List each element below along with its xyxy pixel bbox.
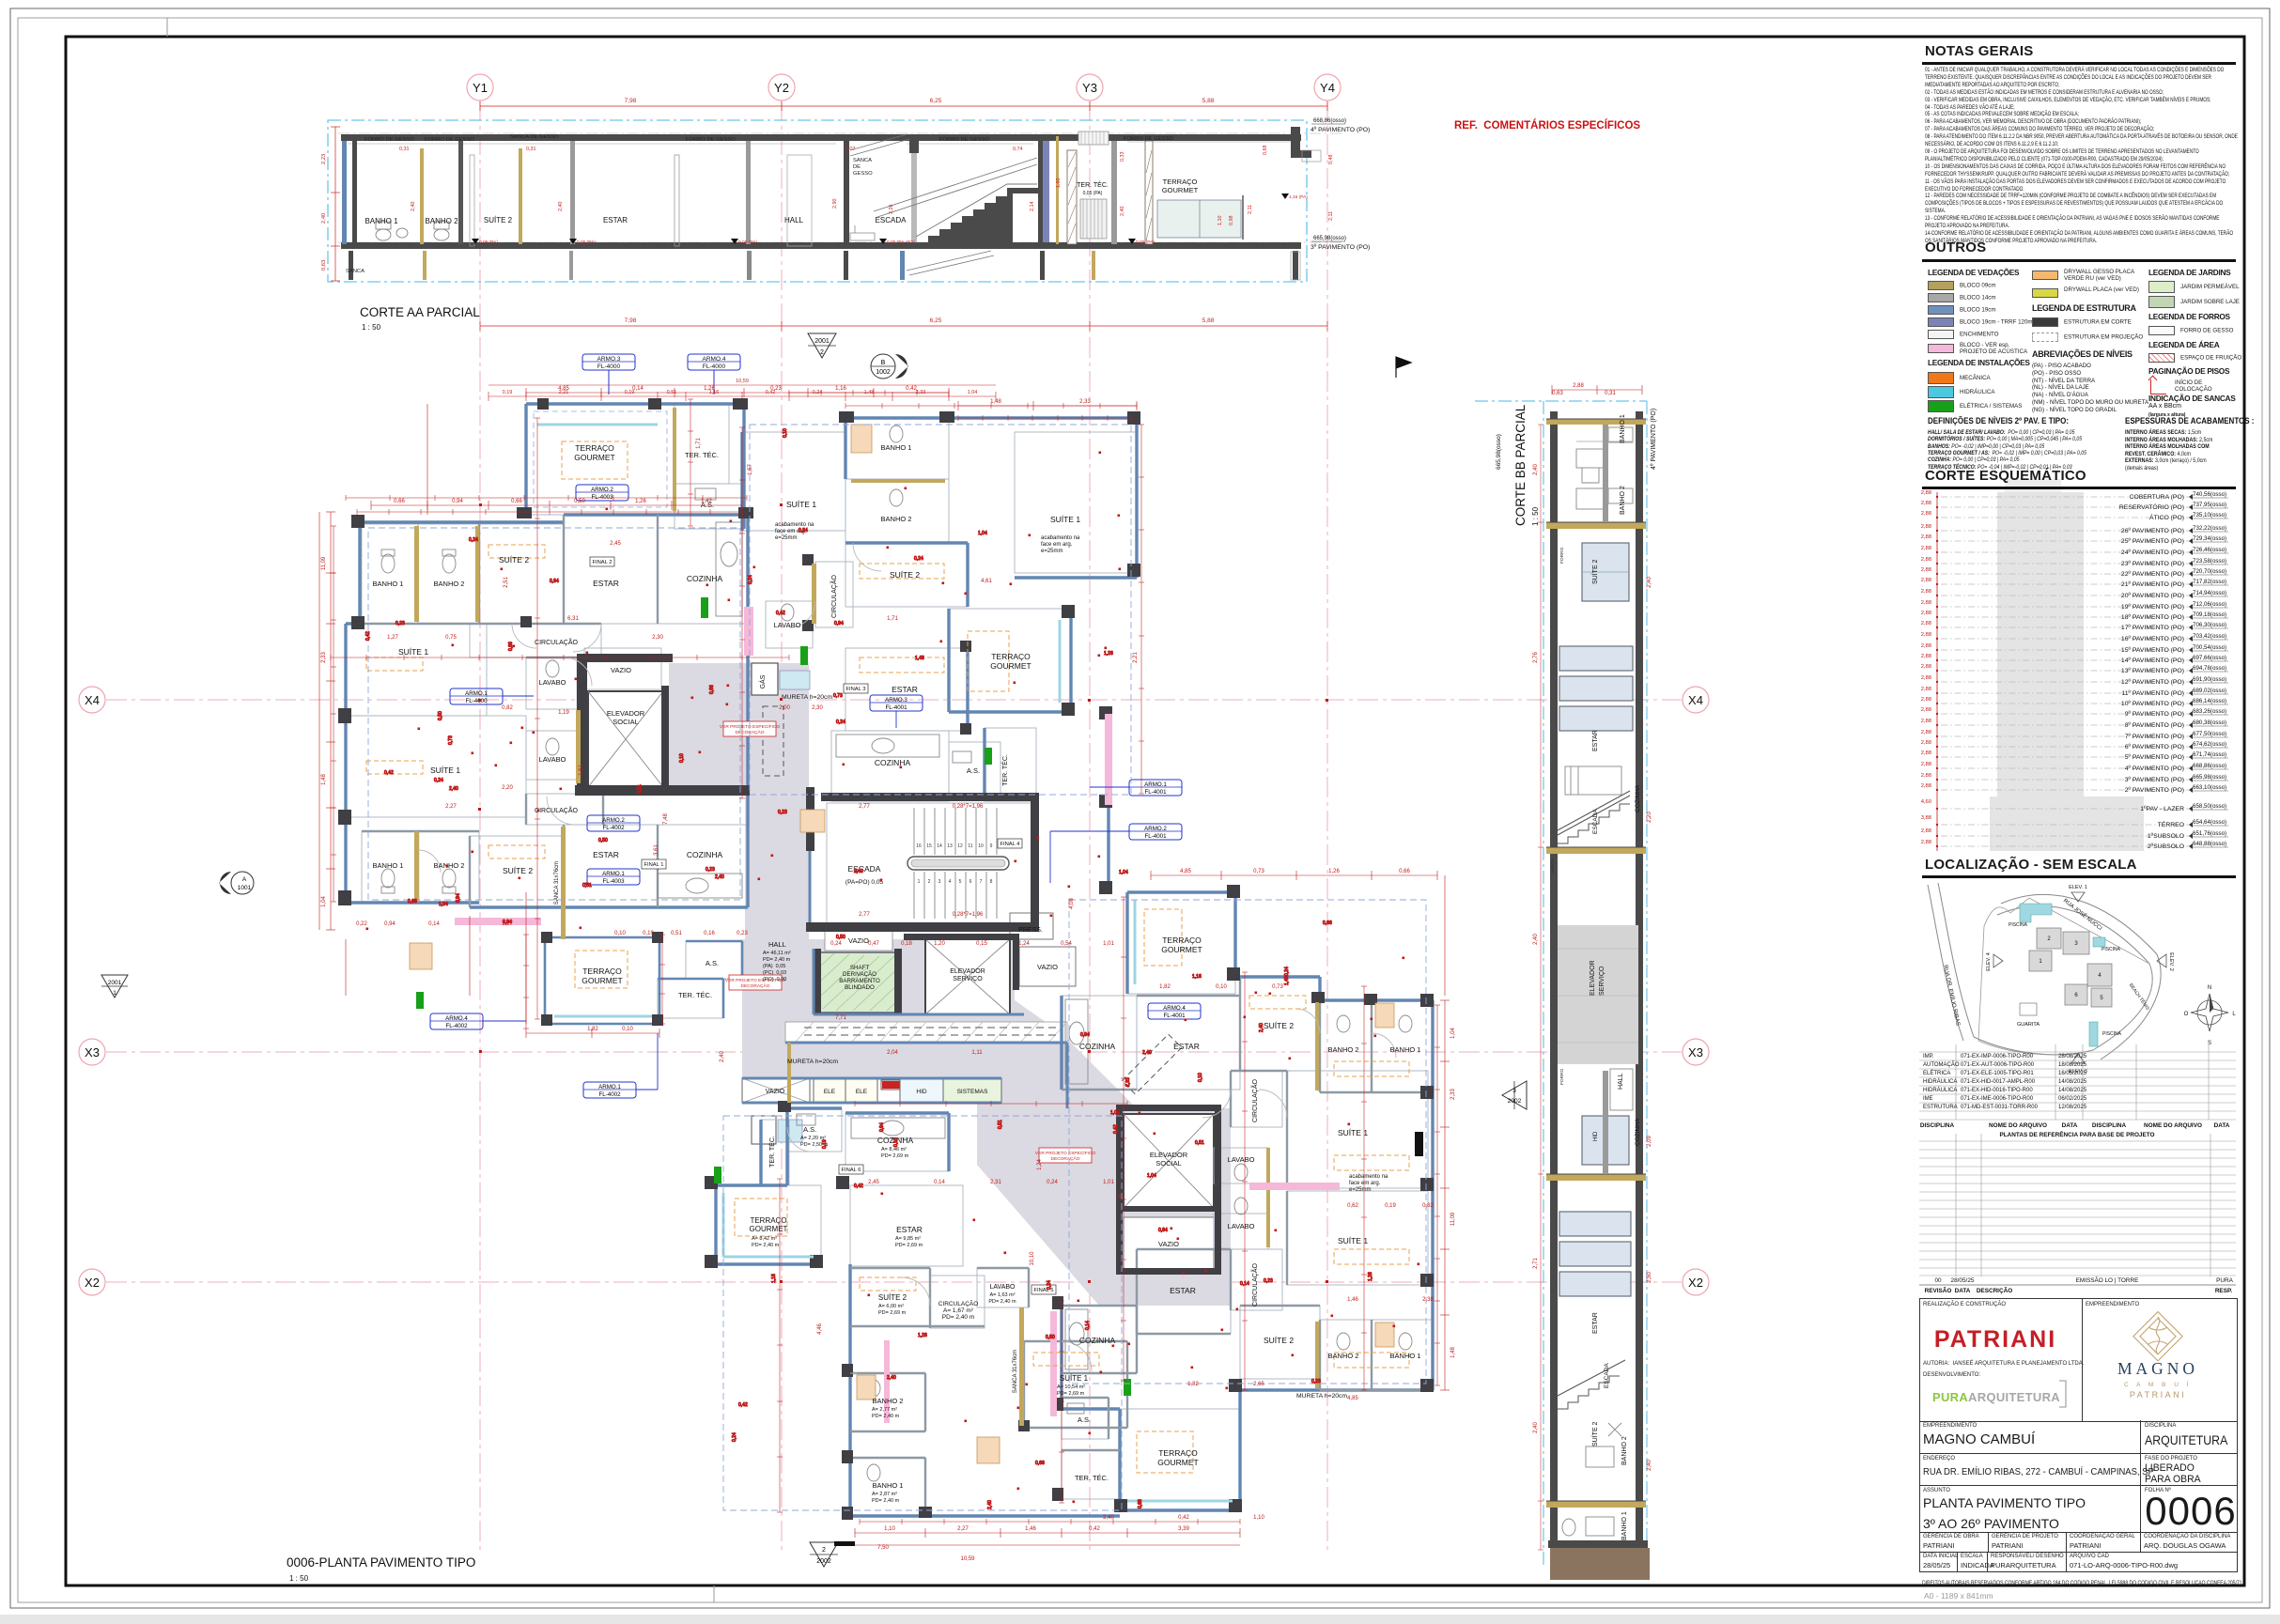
svg-text:DECORAÇÃO: DECORAÇÃO (741, 982, 770, 989)
svg-text:SUÍTE 1: SUÍTE 1 (430, 766, 460, 775)
svg-text:VAZIO: VAZIO (766, 1089, 785, 1095)
svg-text:ARMO.4: ARMO.4 (445, 1015, 468, 1022)
svg-text:SUÍTE 2: SUÍTE 2 (484, 216, 513, 224)
svg-text:DERIVAÇÃO: DERIVAÇÃO (843, 971, 876, 978)
svg-text:1: 1 (918, 879, 921, 885)
svg-text:2,88: 2,88 (1921, 750, 1931, 756)
svg-text:ARMO.1: ARMO.1 (1144, 781, 1167, 788)
svg-text:0,66: 0,66 (394, 499, 405, 504)
svg-text:SHAFT: SHAFT (850, 965, 870, 971)
svg-text:TERRAÇO: TERRAÇO (1163, 178, 1198, 186)
svg-text:BARRAMENTO: BARRAMENTO (839, 978, 880, 984)
svg-text:GOURMET: GOURMET (574, 453, 614, 462)
svg-text:714,94(osso): 714,94(osso) (2193, 590, 2226, 596)
svg-text:740,56(osso): 740,56(osso) (2193, 491, 2226, 498)
svg-text:1,26: 1,26 (1104, 651, 1113, 657)
svg-text:0,10: 0,10 (893, 1137, 899, 1147)
svg-text:FL-4000: FL-4000 (597, 363, 621, 370)
svg-text:2,40: 2,40 (1647, 1460, 1652, 1471)
svg-text:acabamento na: acabamento na (1349, 1174, 1388, 1180)
svg-text:PISCINA: PISCINA (2009, 922, 2028, 928)
svg-text:0,33: 0,33 (1120, 152, 1125, 162)
svg-text:0,22: 0,22 (356, 921, 367, 927)
svg-text:TERRAÇO: TERRAÇO (1158, 1448, 1198, 1458)
svg-text:8: 8 (990, 879, 993, 885)
svg-text:COZINHA: COZINHA (687, 850, 723, 859)
svg-text:ELÉTRICA: ELÉTRICA (1923, 1070, 1950, 1076)
svg-text:0,24: 0,24 (1047, 1280, 1052, 1290)
svg-text:VAZIO: VAZIO (1158, 1240, 1179, 1248)
svg-text:BANHO 1: BANHO 1 (873, 1481, 904, 1490)
svg-text:PRESS.: PRESS. (1018, 927, 1043, 934)
svg-text:2,88: 2,88 (1921, 719, 1931, 724)
svg-text:0,94: 0,94 (452, 499, 463, 504)
svg-text:FL-4002: FL-4002 (598, 1091, 621, 1098)
svg-text:2,33: 2,33 (1125, 1077, 1131, 1087)
svg-text:3,61: 3,61 (654, 844, 659, 856)
svg-text:2,88: 2,88 (1573, 383, 1584, 389)
svg-text:ESTAR: ESTAR (593, 850, 619, 859)
svg-text:26º PAVIMENTO (PO): 26º PAVIMENTO (PO) (2121, 528, 2184, 534)
svg-text:16º PAVIMENTO (PO): 16º PAVIMENTO (PO) (2121, 636, 2184, 642)
svg-text:0,24: 0,24 (1284, 967, 1290, 976)
svg-text:0,42: 0,42 (1178, 1515, 1189, 1521)
svg-text:0,66: 0,66 (408, 899, 417, 905)
svg-text:2,11: 2,11 (1248, 205, 1253, 214)
svg-text:2º PAVIMENTO (PO): 2º PAVIMENTO (PO) (2125, 787, 2184, 794)
svg-text:1,26: 1,26 (704, 386, 715, 392)
svg-text:HID: HID (916, 1089, 927, 1095)
svg-text:4,85: 4,85 (558, 386, 569, 392)
svg-text:0,14: 0,14 (934, 1180, 945, 1185)
svg-text:A= 2,77 m²: A= 2,77 m² (872, 1407, 897, 1413)
svg-text:ESCADA: ESCADA (1592, 809, 1599, 834)
svg-text:0,42: 0,42 (1113, 1124, 1119, 1134)
svg-text:HALL: HALL (784, 216, 804, 224)
svg-text:1,11: 1,11 (971, 1050, 983, 1056)
svg-text:BANHO 2: BANHO 2 (873, 1397, 904, 1405)
svg-text:SANCA: SANCA (346, 269, 364, 274)
svg-text:0,31: 0,31 (1605, 391, 1616, 396)
svg-text:5: 5 (959, 879, 962, 885)
svg-text:2: 2 (820, 349, 824, 356)
svg-text:TERRAÇO: TERRAÇO (575, 443, 614, 453)
svg-text:1,24: 1,24 (1018, 941, 1030, 947)
svg-text:COZINHA: COZINHA (687, 574, 723, 583)
svg-text:1 : 50: 1 : 50 (362, 323, 381, 332)
svg-text:2,51: 2,51 (504, 577, 509, 588)
svg-text:1,10: 1,10 (884, 1526, 895, 1532)
svg-text:CIRCULAÇÃO: CIRCULAÇÃO (1250, 1263, 1259, 1307)
svg-text:REVISÃO: REVISÃO (1925, 1286, 1952, 1294)
svg-text:0,19: 0,19 (643, 931, 654, 936)
svg-text:PD= 2,69 m: PD= 2,69 m (895, 1243, 923, 1248)
svg-text:(PA=PO) 0,05: (PA=PO) 0,05 (845, 879, 884, 886)
svg-text:726,46(osso): 726,46(osso) (2193, 547, 2226, 553)
svg-text:7,48: 7,48 (663, 813, 669, 825)
svg-text:DE: DE (853, 164, 861, 170)
svg-text:0,28*7=1,96: 0,28*7=1,96 (953, 804, 984, 810)
svg-text:10,59: 10,59 (736, 379, 749, 384)
svg-text:LAVABO: LAVABO (774, 621, 801, 629)
svg-text:ARMO.2: ARMO.2 (1144, 826, 1167, 832)
svg-text:MURETA h=20cm: MURETA h=20cm (782, 694, 832, 701)
svg-text:SUÍTE 2: SUÍTE 2 (499, 555, 529, 565)
svg-text:TER. TÉC.: TER. TÉC. (678, 991, 712, 999)
svg-text:0,28*7=1,96: 0,28*7=1,96 (953, 912, 984, 918)
svg-text:RESERVATÓRIO (PO): RESERVATÓRIO (PO) (2119, 503, 2184, 511)
svg-text:FORRO DE GESSO: FORRO DE GESSO (939, 137, 989, 143)
svg-text:2,40: 2,40 (1142, 1050, 1152, 1056)
svg-text:0,42: 0,42 (906, 386, 917, 392)
svg-text:1,48: 1,48 (1450, 1347, 1456, 1358)
svg-text:651,76(osso): 651,76(osso) (2193, 830, 2226, 837)
svg-text:0,23: 0,23 (396, 621, 405, 626)
svg-text:2001: 2001 (814, 338, 830, 345)
svg-text:2,88: 2,88 (1921, 621, 1931, 626)
svg-text:0,14: 0,14 (1240, 1281, 1249, 1287)
svg-text:0,05 (PA=PO): 0,05 (PA=PO) (887, 240, 915, 245)
svg-text:2,27: 2,27 (957, 1526, 969, 1532)
svg-text:4,08: 4,08 (1069, 898, 1075, 909)
svg-text:1,26: 1,26 (918, 1333, 927, 1338)
svg-text:1,24: 1,24 (1037, 1159, 1043, 1170)
svg-text:FL-4003: FL-4003 (591, 494, 613, 501)
svg-text:A= 9,85 m²: A= 9,85 m² (895, 1236, 921, 1242)
svg-text:071-EX-HID-0017-AMPL-R00: 071-EX-HID-0017-AMPL-R00 (1961, 1079, 2036, 1085)
svg-text:0,15: 0,15 (976, 941, 987, 947)
svg-text:MURETA h=20cm: MURETA h=20cm (787, 1059, 838, 1065)
svg-text:0,42: 0,42 (365, 631, 371, 641)
svg-text:PD= 2,69 m: PD= 2,69 m (878, 1310, 907, 1316)
svg-text:071-EX-IMP-0006-TIPO-R00: 071-EX-IMP-0006-TIPO-R00 (1961, 1054, 2034, 1059)
svg-text:2,40: 2,40 (558, 202, 564, 212)
svg-text:0,42: 0,42 (1089, 1526, 1100, 1532)
svg-text:VAZIO: VAZIO (611, 666, 631, 674)
svg-text:2,31: 2,31 (990, 1180, 1001, 1185)
svg-text:9: 9 (990, 843, 993, 849)
svg-text:1,16: 1,16 (1192, 974, 1202, 980)
svg-text:ARMO.1: ARMO.1 (602, 871, 625, 877)
svg-text:071-EX-HID-0016-TIPO-R00: 071-EX-HID-0016-TIPO-R00 (1961, 1088, 2033, 1093)
svg-text:e=25mm: e=25mm (1349, 1187, 1372, 1193)
svg-text:1,04: 1,04 (1119, 870, 1128, 875)
svg-text:ESTAR: ESTAR (1170, 1286, 1196, 1295)
svg-text:674,62(osso): 674,62(osso) (2193, 741, 2226, 748)
svg-text:11º PAVIMENTO (PO): 11º PAVIMENTO (PO) (2121, 690, 2184, 697)
svg-text:1002: 1002 (876, 369, 891, 376)
svg-text:X2: X2 (1688, 1276, 1703, 1290)
svg-text:GÁS: GÁS (758, 674, 767, 688)
svg-text:ELEVADOR: ELEVADOR (607, 709, 645, 718)
svg-text:BANHO 1: BANHO 1 (1620, 414, 1626, 443)
svg-text:0,23: 0,23 (706, 867, 715, 873)
svg-text:7,98: 7,98 (625, 98, 637, 104)
svg-text:1,46: 1,46 (1025, 1526, 1036, 1532)
svg-text:GESSO: GESSO (853, 171, 873, 177)
svg-text:A= 1,67 m²: A= 1,67 m² (943, 1307, 974, 1314)
svg-text:BANHO 1: BANHO 1 (881, 443, 912, 452)
svg-text:0,05 (PA): 0,05 (PA) (738, 240, 757, 245)
svg-text:10,10: 10,10 (1030, 1251, 1035, 1266)
svg-text:14/08/2025: 14/08/2025 (2058, 1088, 2087, 1093)
svg-text:FL-4001: FL-4001 (1144, 833, 1167, 840)
svg-text:4,61: 4,61 (981, 579, 992, 584)
svg-text:2,88: 2,88 (1921, 490, 1931, 496)
svg-text:1001: 1001 (238, 885, 252, 891)
svg-text:06/02/2025: 06/02/2025 (2058, 1096, 2087, 1102)
svg-text:1,01: 1,01 (1103, 1180, 1114, 1185)
svg-text:5,88: 5,88 (1202, 98, 1215, 104)
svg-text:0,19: 0,19 (822, 1139, 828, 1149)
svg-text:0,42: 0,42 (738, 1402, 748, 1408)
svg-text:23º PAVIMENTO (PO): 23º PAVIMENTO (PO) (2121, 561, 2184, 567)
svg-text:2,40: 2,40 (1533, 934, 1539, 945)
svg-text:BANHO 1: BANHO 1 (373, 580, 404, 588)
svg-text:1,48: 1,48 (990, 399, 1001, 405)
svg-text:712,06(osso): 712,06(osso) (2193, 601, 2226, 608)
svg-text:15: 15 (926, 843, 932, 849)
svg-text:SERVIÇO: SERVIÇO (953, 976, 983, 982)
svg-text:2,40: 2,40 (720, 1051, 725, 1062)
svg-text:face em arg.: face em arg. (1041, 542, 1073, 548)
svg-text:ARMO.2: ARMO.2 (602, 817, 625, 824)
svg-text:2,14: 2,14 (1030, 202, 1035, 212)
svg-text:BANHO 1: BANHO 1 (373, 861, 404, 870)
svg-text:2,88: 2,88 (1921, 687, 1931, 692)
svg-text:SOCIAL: SOCIAL (613, 718, 639, 726)
svg-text:2,26: 2,26 (889, 205, 894, 215)
svg-text:PD= 2,40 m: PD= 2,40 m (752, 1243, 780, 1248)
svg-text:0,10: 0,10 (622, 1027, 633, 1032)
svg-text:1,15 (PA): 1,15 (PA) (1289, 194, 1308, 200)
svg-text:0,63: 0,63 (321, 260, 327, 271)
svg-text:2,90: 2,90 (832, 199, 838, 209)
svg-text:SUÍTE 2: SUÍTE 2 (503, 866, 533, 875)
svg-text:O: O (2184, 1012, 2189, 1017)
svg-text:0,23: 0,23 (770, 386, 782, 392)
svg-text:1ºSUBSOLO: 1ºSUBSOLO (2148, 833, 2184, 840)
svg-text:0,66: 0,66 (1138, 1499, 1143, 1508)
svg-text:2,40: 2,40 (1103, 1515, 1114, 1521)
svg-text:TER. TÉC.: TER. TÉC. (1077, 180, 1109, 189)
svg-text:SANCA 31x76cm: SANCA 31x76cm (554, 861, 560, 905)
svg-text:0,50: 0,50 (1046, 1335, 1055, 1340)
svg-text:729,34(osso): 729,34(osso) (2193, 535, 2226, 542)
svg-text:7º PAVIMENTO (PO): 7º PAVIMENTO (PO) (2125, 734, 2184, 740)
svg-text:ELE: ELE (824, 1089, 836, 1095)
svg-text:14: 14 (937, 843, 942, 849)
svg-text:2,40: 2,40 (1533, 464, 1539, 475)
svg-text:2,33: 2,33 (321, 652, 327, 663)
svg-text:0,23: 0,23 (1311, 1379, 1321, 1384)
svg-text:GOURMET: GOURMET (990, 661, 1031, 671)
svg-text:2,11: 2,11 (1328, 211, 1334, 221)
svg-text:2002: 2002 (816, 1558, 831, 1565)
svg-text:X3: X3 (85, 1045, 100, 1059)
svg-text:4,85: 4,85 (1180, 869, 1191, 874)
svg-text:4: 4 (949, 879, 952, 885)
svg-text:0,50: 0,50 (438, 711, 443, 720)
svg-text:acabamento na: acabamento na (1041, 535, 1080, 541)
svg-text:6,25: 6,25 (930, 98, 942, 104)
svg-text:1,26: 1,26 (1368, 1272, 1373, 1281)
svg-text:1 : 50: 1 : 50 (289, 1574, 309, 1583)
svg-text:SANCA DE GESSO: SANCA DE GESSO (510, 134, 559, 140)
svg-text:1,04: 1,04 (1110, 1110, 1120, 1116)
svg-text:686,14(osso): 686,14(osso) (2193, 698, 2226, 704)
svg-text:IMP.: IMP. (1923, 1054, 1934, 1059)
svg-text:VAZIO: VAZIO (1037, 963, 1058, 971)
svg-text:717,82(osso): 717,82(osso) (2193, 579, 2226, 585)
svg-text:PLANTAS DE REFERÊNCIA PARA BAS: PLANTAS DE REFERÊNCIA PARA BASE DE PROJE… (2000, 1130, 2155, 1138)
svg-text:2,27: 2,27 (445, 804, 457, 810)
svg-text:680,38(osso): 680,38(osso) (2193, 719, 2226, 726)
svg-text:0,94: 0,94 (1158, 1228, 1168, 1233)
svg-text:ESTAR: ESTAR (896, 1225, 923, 1234)
svg-text:0,23: 0,23 (737, 931, 748, 936)
svg-text:2,88: 2,88 (1921, 600, 1931, 606)
svg-text:ARMO.2: ARMO.2 (591, 487, 613, 493)
svg-text:BANHO 1: BANHO 1 (1621, 1511, 1628, 1540)
svg-text:671,74(osso): 671,74(osso) (2193, 751, 2226, 758)
svg-text:7,71: 7,71 (835, 1015, 846, 1021)
svg-text:COBERTURA (PO): COBERTURA (PO) (2130, 494, 2184, 501)
svg-text:1,48: 1,48 (915, 656, 924, 661)
svg-text:CIRCULAÇÃO: CIRCULAÇÃO (830, 575, 838, 618)
svg-text:1,10: 1,10 (1253, 1515, 1264, 1521)
svg-text:TERRAÇO: TERRAÇO (991, 652, 1031, 661)
svg-text:0,10: 0,10 (614, 931, 626, 936)
svg-text:0,42: 0,42 (854, 1183, 863, 1189)
svg-text:2,40: 2,40 (411, 202, 416, 212)
svg-text:LAVABO: LAVABO (539, 755, 566, 764)
svg-text:071-EX-ELE-1005-TIPO-R01: 071-EX-ELE-1005-TIPO-R01 (1961, 1071, 2034, 1076)
svg-text:2,65: 2,65 (1253, 1382, 1264, 1387)
svg-text:PISCINA: PISCINA (2102, 947, 2121, 952)
svg-text:2,88: 2,88 (1921, 524, 1931, 530)
svg-text:SOCIAL: SOCIAL (1156, 1159, 1182, 1168)
svg-text:2,30: 2,30 (652, 635, 663, 641)
svg-text:SERVIÇO: SERVIÇO (1599, 966, 1605, 996)
svg-text:1,04: 1,04 (1450, 1028, 1456, 1039)
svg-text:2,76: 2,76 (1533, 652, 1539, 663)
svg-text:2,88: 2,88 (1921, 697, 1931, 703)
svg-text:1,26: 1,26 (1328, 869, 1340, 874)
svg-text:2,40: 2,40 (854, 869, 863, 874)
svg-text:2,40: 2,40 (321, 213, 327, 224)
svg-text:2,33: 2,33 (1079, 399, 1091, 405)
svg-text:1,01: 1,01 (1103, 941, 1114, 947)
svg-text:0,18: 0,18 (901, 941, 912, 947)
svg-text:SUÍTE 2: SUÍTE 2 (878, 1293, 907, 1302)
svg-text:3: 3 (1512, 1088, 1516, 1094)
svg-text:2,33: 2,33 (1450, 1089, 1456, 1100)
svg-text:1,10: 1,10 (1218, 216, 1223, 226)
svg-text:1,82: 1,82 (1187, 1382, 1199, 1387)
svg-text:2,88: 2,88 (1921, 675, 1931, 681)
svg-text:(PA) 0,05: (PA) 0,05 (763, 964, 785, 969)
svg-text:2,40: 2,40 (987, 1500, 993, 1509)
svg-text:REF. COMENTÁRIOS ESPECÍFICOS: REF. COMENTÁRIOS ESPECÍFICOS (1454, 119, 1640, 131)
svg-text:10: 10 (978, 843, 984, 849)
svg-text:X4: X4 (1688, 693, 1703, 707)
svg-text:2,40: 2,40 (715, 874, 724, 880)
svg-text:654,64(osso): 654,64(osso) (2193, 819, 2226, 826)
svg-text:12/08/2025: 12/08/2025 (2058, 1105, 2087, 1110)
svg-text:ESTAR: ESTAR (1592, 1312, 1599, 1334)
svg-text:28/08/2025: 28/08/2025 (2058, 1054, 2087, 1059)
svg-text:FINAL 2: FINAL 2 (592, 560, 612, 565)
svg-text:2,88: 2,88 (1921, 783, 1931, 789)
svg-text:SUÍTE 1: SUÍTE 1 (786, 500, 816, 509)
svg-text:1,20: 1,20 (934, 941, 945, 947)
svg-text:HIDRÁULICA: HIDRÁULICA (1923, 1078, 1957, 1085)
svg-text:ELEV. 4: ELEV. 4 (1986, 952, 1992, 971)
svg-text:648,88(osso): 648,88(osso) (2193, 841, 2226, 847)
svg-text:HALL: HALL (1618, 1073, 1624, 1090)
svg-text:BANHO 2: BANHO 2 (425, 217, 458, 225)
svg-text:B: B (881, 360, 886, 366)
svg-text:BANHO 2: BANHO 2 (1621, 1436, 1628, 1465)
svg-text:TER. TÉC.: TER. TÉC. (1000, 754, 1009, 786)
svg-text:2,77: 2,77 (859, 804, 870, 810)
svg-text:e=25mm: e=25mm (775, 535, 798, 541)
svg-text:0,73: 0,73 (448, 735, 454, 745)
svg-text:0,73: 0,73 (833, 693, 843, 699)
svg-text:ELEVADOR: ELEVADOR (1590, 960, 1596, 996)
svg-text:BANHO 2: BANHO 2 (434, 861, 465, 870)
svg-text:071-EX-IME-0006-TIPO-R00: 071-EX-IME-0006-TIPO-R00 (1961, 1096, 2034, 1102)
svg-text:A.S.: A.S. (1078, 1415, 1091, 1424)
svg-text:2,77: 2,77 (859, 912, 870, 918)
svg-text:12º PAVIMENTO (PO): 12º PAVIMENTO (PO) (2121, 679, 2184, 686)
svg-text:2,20: 2,20 (1647, 812, 1652, 823)
svg-text:DESCRIÇÃO: DESCRIÇÃO (1977, 1286, 2012, 1294)
svg-text:BANHO 2: BANHO 2 (1328, 1352, 1359, 1360)
svg-text:2,88: 2,88 (1921, 762, 1931, 767)
svg-text:12: 12 (957, 843, 963, 849)
svg-text:9º PAVIMENTO (PO): 9º PAVIMENTO (PO) (2125, 711, 2184, 718)
svg-text:2,88: 2,88 (1921, 707, 1931, 713)
svg-text:FL-4001: FL-4001 (1163, 1013, 1186, 1019)
svg-text:2,88: 2,88 (1921, 611, 1931, 616)
svg-text:2,45: 2,45 (868, 1180, 879, 1185)
svg-text:2,88: 2,88 (1921, 589, 1931, 595)
svg-text:4,46: 4,46 (817, 1323, 823, 1335)
svg-text:0,63: 0,63 (1552, 391, 1563, 396)
svg-text:CIRCULAÇÃO: CIRCULAÇÃO (938, 1299, 979, 1307)
svg-text:19º PAVIMENTO (PO): 19º PAVIMENTO (PO) (2121, 604, 2184, 611)
svg-text:0,66: 0,66 (1399, 869, 1410, 874)
svg-text:e=25mm: e=25mm (1041, 549, 1063, 554)
svg-text:PD= 2,69 m: PD= 2,69 m (1057, 1391, 1085, 1397)
svg-text:DISCIPLINA: DISCIPLINA (2092, 1122, 2127, 1129)
svg-text:CORTE AA PARCIAL: CORTE AA PARCIAL (360, 305, 480, 319)
svg-text:0,16: 0,16 (704, 931, 715, 936)
svg-text:X4: X4 (85, 693, 100, 707)
svg-text:1,16: 1,16 (835, 386, 846, 392)
svg-text:1,48: 1,48 (1284, 976, 1290, 985)
svg-text:PD= 2,40 m: PD= 2,40 m (872, 1414, 900, 1419)
svg-text:2,88: 2,88 (1921, 578, 1931, 583)
svg-text:TER. TÉC.: TER. TÉC. (768, 1136, 776, 1168)
svg-text:25º PAVIMENTO (PO): 25º PAVIMENTO (PO) (2121, 538, 2184, 545)
svg-text:AUTOMAÇÃO: AUTOMAÇÃO (1923, 1061, 1960, 1068)
svg-text:00: 00 (1934, 1277, 1942, 1284)
svg-text:1,04: 1,04 (1147, 1173, 1156, 1179)
svg-text:GOURMET: GOURMET (582, 976, 622, 985)
